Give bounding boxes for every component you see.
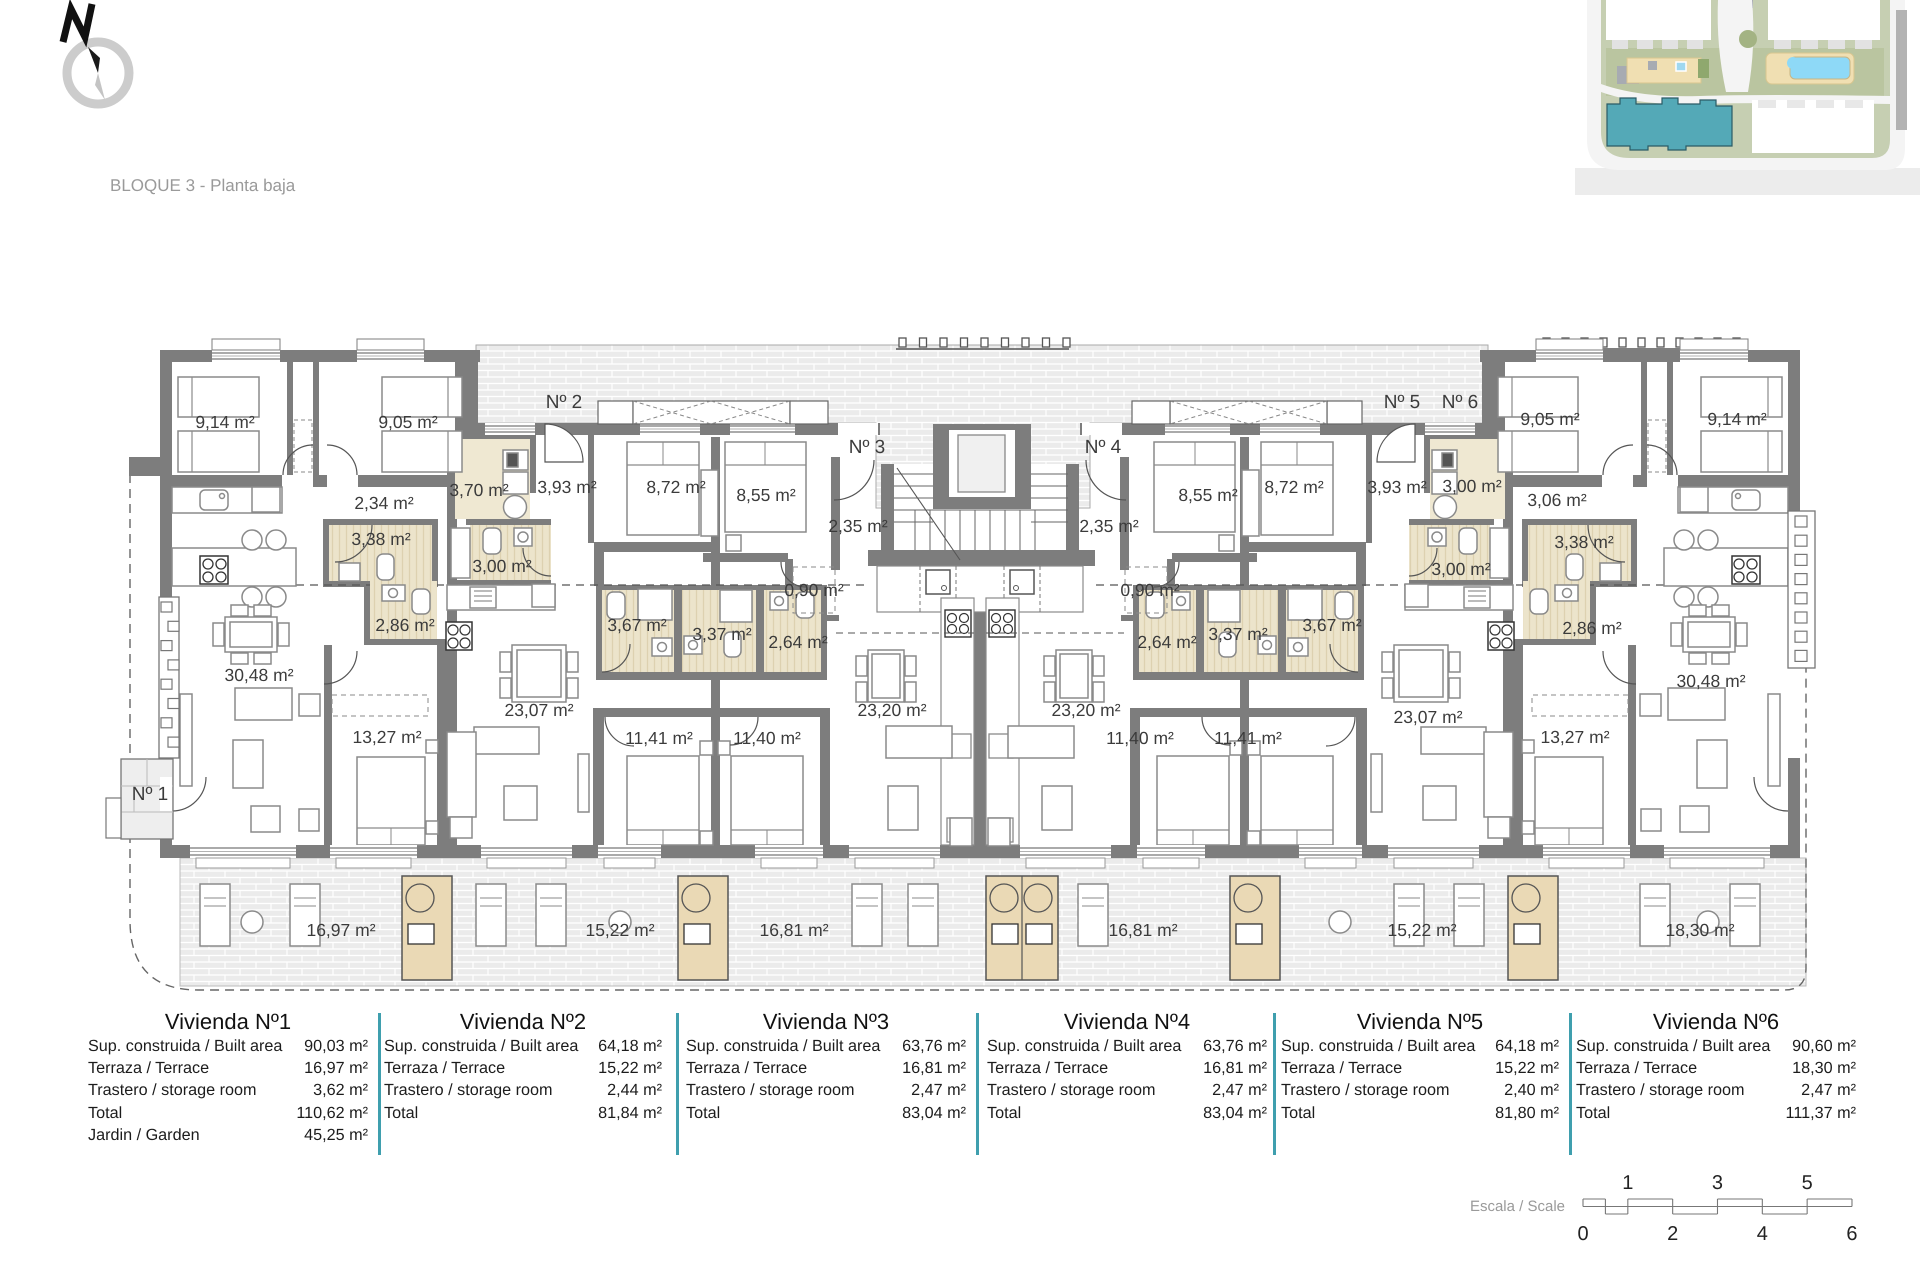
svg-text:3,06 m²: 3,06 m² <box>1527 490 1586 510</box>
svg-text:8,55 m²: 8,55 m² <box>1178 485 1237 505</box>
svg-text:3,37 m²: 3,37 m² <box>1208 624 1267 644</box>
svg-text:9,14 m²: 9,14 m² <box>195 412 254 432</box>
svg-text:11,41 m²: 11,41 m² <box>1214 728 1282 748</box>
svg-text:Nº 5: Nº 5 <box>1384 392 1421 413</box>
svg-text:3,37 m²: 3,37 m² <box>692 624 751 644</box>
svg-text:3,93 m²: 3,93 m² <box>537 477 596 497</box>
svg-text:9,05 m²: 9,05 m² <box>378 412 437 432</box>
svg-text:16,97 m²: 16,97 m² <box>306 920 375 940</box>
svg-text:Nº 3: Nº 3 <box>849 437 886 458</box>
svg-text:23,07 m²: 23,07 m² <box>504 700 573 720</box>
svg-text:4: 4 <box>1757 1223 1768 1245</box>
svg-text:3,00 m²: 3,00 m² <box>472 556 531 576</box>
svg-text:18,30 m²: 18,30 m² <box>1665 920 1734 940</box>
svg-text:3,38 m²: 3,38 m² <box>1554 532 1613 552</box>
svg-text:Nº 6: Nº 6 <box>1442 392 1479 413</box>
svg-text:30,48 m²: 30,48 m² <box>1676 671 1745 691</box>
svg-text:11,41 m²: 11,41 m² <box>625 728 693 748</box>
svg-text:2,86 m²: 2,86 m² <box>1562 618 1621 638</box>
svg-text:16,81 m²: 16,81 m² <box>759 920 828 940</box>
svg-text:Escala / Scale: Escala / Scale <box>1470 1198 1565 1215</box>
svg-text:11,40 m²: 11,40 m² <box>733 728 801 748</box>
svg-text:Nº 2: Nº 2 <box>546 392 583 413</box>
svg-text:15,22 m²: 15,22 m² <box>585 920 654 940</box>
svg-text:30,48 m²: 30,48 m² <box>224 665 293 685</box>
svg-text:23,20 m²: 23,20 m² <box>1051 700 1120 720</box>
svg-text:2,35 m²: 2,35 m² <box>1079 516 1138 536</box>
svg-text:13,27 m²: 13,27 m² <box>352 727 421 747</box>
svg-text:6: 6 <box>1846 1223 1857 1245</box>
svg-text:0,90 m²: 0,90 m² <box>1120 580 1179 600</box>
svg-text:3,38 m²: 3,38 m² <box>351 529 410 549</box>
svg-text:3,70 m²: 3,70 m² <box>449 480 508 500</box>
svg-text:2,64 m²: 2,64 m² <box>1137 632 1196 652</box>
svg-text:9,05 m²: 9,05 m² <box>1520 409 1579 429</box>
svg-text:3,67 m²: 3,67 m² <box>1302 615 1361 635</box>
svg-text:8,55 m²: 8,55 m² <box>736 485 795 505</box>
svg-text:0,90 m²: 0,90 m² <box>784 580 843 600</box>
svg-text:8,72 m²: 8,72 m² <box>1264 477 1323 497</box>
svg-text:3,67 m²: 3,67 m² <box>607 615 666 635</box>
svg-text:2: 2 <box>1667 1223 1678 1245</box>
svg-text:2,64 m²: 2,64 m² <box>768 632 827 652</box>
svg-text:3,00 m²: 3,00 m² <box>1442 476 1501 496</box>
svg-text:Nº 1: Nº 1 <box>132 784 169 805</box>
svg-text:16,81 m²: 16,81 m² <box>1108 920 1177 940</box>
svg-text:3,93 m²: 3,93 m² <box>1367 477 1426 497</box>
svg-text:15,22 m²: 15,22 m² <box>1387 920 1456 940</box>
svg-text:9,14 m²: 9,14 m² <box>1707 409 1766 429</box>
svg-text:13,27 m²: 13,27 m² <box>1540 727 1609 747</box>
svg-text:5: 5 <box>1802 1172 1813 1194</box>
svg-text:2,86 m²: 2,86 m² <box>375 615 434 635</box>
svg-text:BLOQUE 3 - Planta baja: BLOQUE 3 - Planta baja <box>110 176 296 195</box>
svg-text:0: 0 <box>1577 1223 1588 1245</box>
svg-text:2,34 m²: 2,34 m² <box>354 493 413 513</box>
svg-text:23,20 m²: 23,20 m² <box>857 700 926 720</box>
svg-text:2,35 m²: 2,35 m² <box>828 516 887 536</box>
svg-text:23,07 m²: 23,07 m² <box>1393 707 1462 727</box>
svg-text:8,72 m²: 8,72 m² <box>646 477 705 497</box>
svg-text:11,40 m²: 11,40 m² <box>1106 728 1174 748</box>
svg-text:Nº 4: Nº 4 <box>1085 437 1122 458</box>
svg-text:3: 3 <box>1712 1172 1723 1194</box>
svg-text:1: 1 <box>1622 1172 1633 1194</box>
svg-text:3,00 m²: 3,00 m² <box>1431 559 1490 579</box>
